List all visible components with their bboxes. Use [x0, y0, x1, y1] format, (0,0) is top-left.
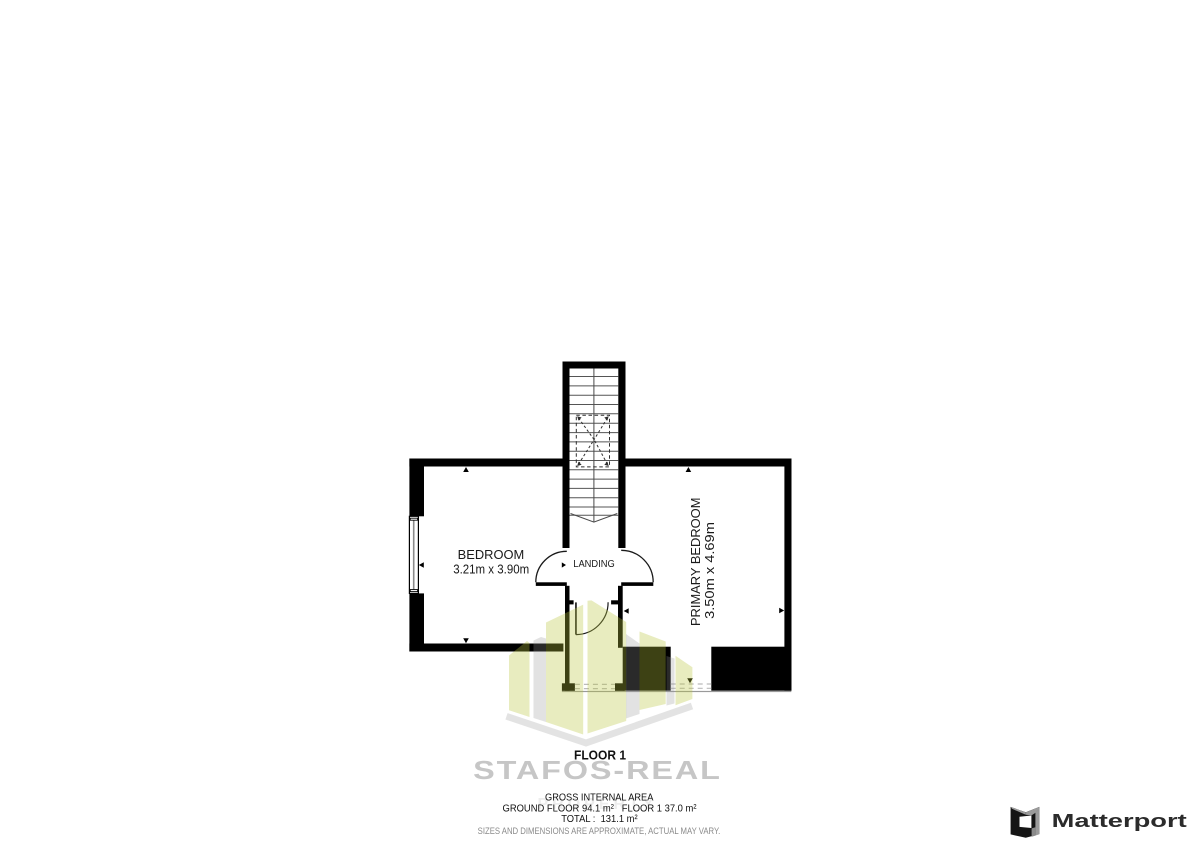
svg-text:3.21m x 3.90m: 3.21m x 3.90m — [453, 562, 529, 576]
svg-text:Matterport: Matterport — [1052, 810, 1187, 831]
svg-text:LANDING: LANDING — [573, 558, 615, 570]
svg-text:TOTAL : 131.1 m²: TOTAL : 131.1 m² — [561, 813, 638, 825]
svg-text:BEDROOM: BEDROOM — [458, 548, 525, 562]
svg-text:SIZES AND DIMENSIONS ARE APPRO: SIZES AND DIMENSIONS ARE APPROXIMATE, AC… — [478, 826, 721, 836]
svg-text:PRIMARY BEDROOM: PRIMARY BEDROOM — [688, 498, 703, 627]
svg-text:3.50m x 4.69m: 3.50m x 4.69m — [703, 522, 717, 619]
svg-text:STAFOS-REAL: STAFOS-REAL — [473, 757, 722, 785]
